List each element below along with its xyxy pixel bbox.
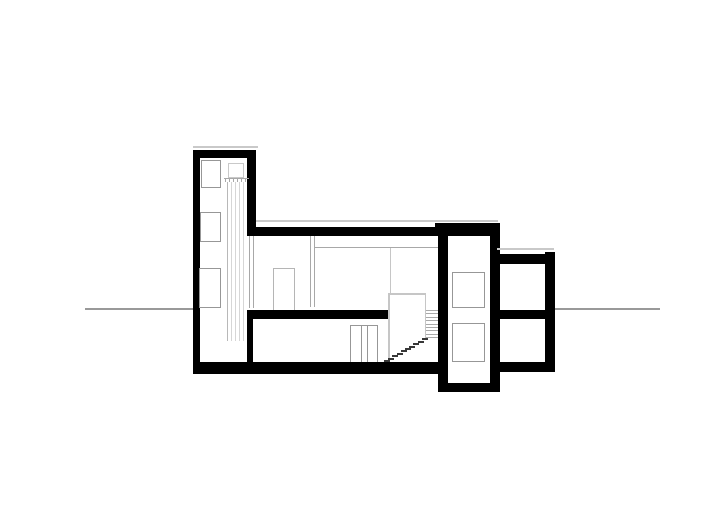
stairwell-left-wall [438, 236, 448, 392]
interior-wall-line [310, 236, 311, 307]
stairwell-window-lower [452, 323, 485, 362]
tower-left-wall [193, 150, 200, 374]
main-bottom-slab [193, 362, 443, 374]
annex-roof-edge-line [497, 248, 554, 250]
stair-steps [384, 336, 428, 362]
lower-level-door [350, 325, 378, 362]
ground-line-left [85, 308, 193, 310]
flue-head-box [228, 163, 244, 178]
stair-opening-line [390, 248, 391, 293]
annex-mid-slab [500, 310, 545, 319]
tower-wall-face-line [249, 236, 250, 308]
tower-window-3 [199, 268, 221, 308]
tower-roof-edge-line [193, 146, 258, 148]
stairwell-bottom-slab [438, 383, 500, 392]
ceiling-beam-line [314, 247, 439, 248]
main-roof-edge-line [256, 220, 498, 222]
stair-enclosure-top-line [388, 293, 426, 295]
tower-window-1 [201, 160, 221, 188]
upper-level-door [273, 268, 295, 310]
tower-window-2 [200, 212, 221, 242]
ground-line-right [555, 308, 660, 310]
tower-right-wall-upper [247, 150, 256, 236]
tower-wall-face-line [253, 236, 254, 308]
door-leaf-line [361, 326, 362, 362]
flue-lines [227, 182, 244, 341]
annex-right-wall [545, 252, 555, 372]
stairwell-window-upper [452, 272, 485, 308]
door-leaf-line [367, 326, 368, 362]
stairwell-head-slab [435, 223, 500, 236]
section-drawing-canvas [0, 0, 720, 509]
annex-bottom-slab [500, 362, 555, 372]
upper-floor-slab [247, 310, 389, 319]
